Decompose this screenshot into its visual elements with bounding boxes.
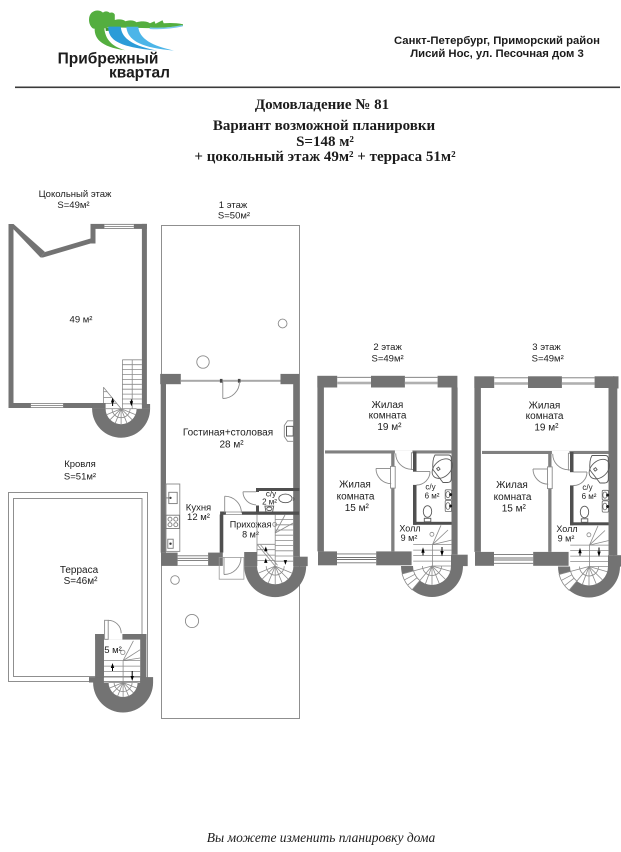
svg-text:6 м²: 6 м²	[425, 492, 440, 501]
svg-text:Вы можете изменить планировку: Вы можете изменить планировку дома	[207, 830, 436, 845]
svg-text:Цокольный этаж: Цокольный этаж	[39, 189, 112, 200]
svg-text:S=49м²: S=49м²	[532, 354, 564, 365]
svg-text:49 м²: 49 м²	[70, 315, 93, 326]
svg-text:S=49м²: S=49м²	[57, 200, 89, 211]
svg-text:S=49м²: S=49м²	[372, 354, 404, 365]
svg-text:Вариант возможной планировки: Вариант возможной планировки	[213, 118, 436, 134]
svg-text:3 этаж: 3 этаж	[532, 342, 561, 353]
svg-text:15 м²: 15 м²	[345, 503, 370, 514]
svg-text:комната: комната	[337, 492, 375, 503]
svg-text:S=51м²: S=51м²	[64, 472, 96, 483]
svg-text:Прихожая: Прихожая	[230, 520, 272, 530]
svg-text:19 м²: 19 м²	[377, 422, 402, 433]
svg-text:S=50м²: S=50м²	[218, 211, 250, 222]
svg-text:комната: комната	[369, 411, 407, 422]
svg-text:с/у: с/у	[425, 483, 435, 492]
svg-text:2 этаж: 2 этаж	[373, 342, 402, 353]
svg-text:Терраса: Терраса	[60, 565, 99, 576]
svg-text:5 м²: 5 м²	[104, 645, 122, 656]
svg-text:1 этаж: 1 этаж	[219, 200, 248, 211]
svg-text:Домовладение № 81: Домовладение № 81	[255, 97, 389, 113]
svg-text:28 м²: 28 м²	[219, 440, 244, 451]
svg-text:квартал: квартал	[109, 65, 170, 82]
svg-text:S=46м²: S=46м²	[64, 576, 99, 587]
svg-text:Жилая: Жилая	[372, 400, 404, 411]
svg-text:+ цокольный этаж 49м² + террас: + цокольный этаж 49м² + терраса 51м²	[194, 149, 456, 165]
svg-text:Гостиная+столовая: Гостиная+столовая	[183, 428, 273, 439]
svg-text:Лисий Нос, ул. Песочная дом 3: Лисий Нос, ул. Песочная дом 3	[410, 48, 584, 60]
svg-text:12 м²: 12 м²	[187, 512, 210, 523]
svg-text:Санкт-Петербург, Приморский ра: Санкт-Петербург, Приморский район	[394, 35, 600, 47]
svg-text:Холл: Холл	[399, 524, 420, 534]
svg-text:2 м²: 2 м²	[262, 498, 277, 507]
svg-text:Кровля: Кровля	[64, 459, 96, 470]
svg-text:S=148 м²: S=148 м²	[296, 134, 354, 150]
svg-text:Жилая: Жилая	[339, 480, 371, 491]
svg-text:9 м²: 9 м²	[401, 533, 418, 543]
svg-text:8 м²: 8 м²	[242, 530, 259, 540]
